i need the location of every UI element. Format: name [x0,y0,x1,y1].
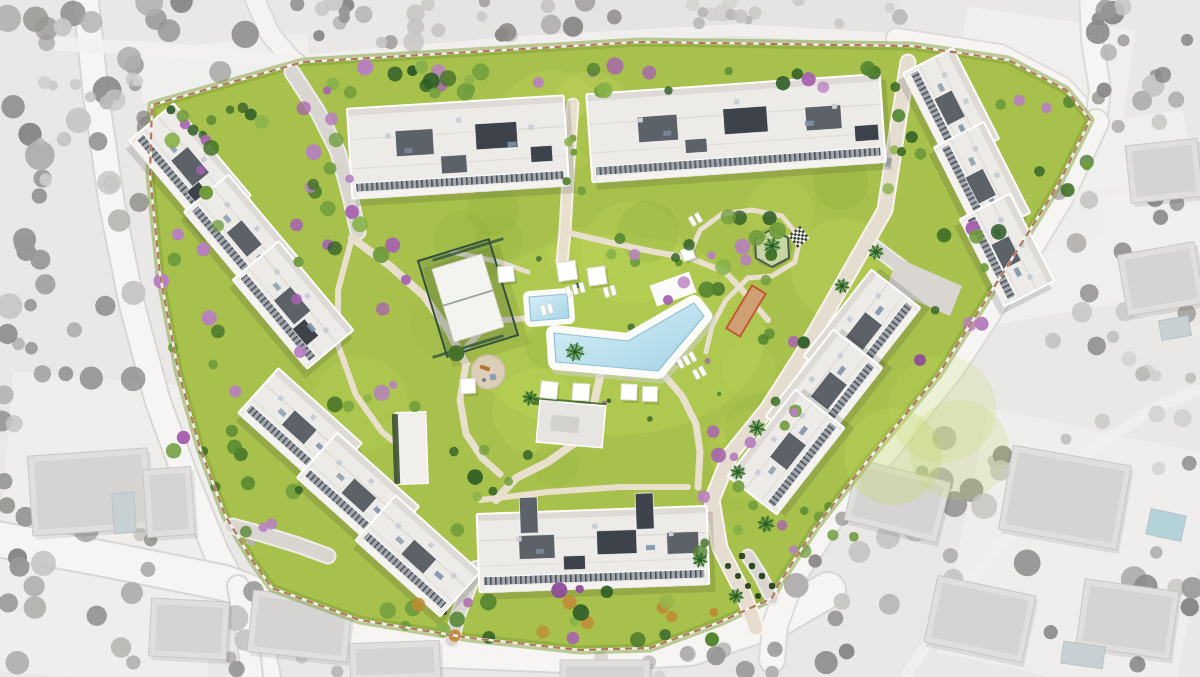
neighbour-house [143,466,199,541]
scene-layers [0,0,1200,677]
neighbour-house [1117,241,1200,320]
pergola-canopy [587,266,610,290]
pergola-canopy [621,384,640,404]
pergola-canopy [556,260,580,285]
neighbour-house [1125,138,1200,207]
west-pavilion [396,411,428,484]
masterplan-rendering [0,0,1200,677]
pergola-canopy [460,378,478,397]
neighbour-house [27,448,156,540]
neighbour-house [560,660,653,677]
pergola-canopy [539,381,560,403]
block-b [346,94,576,206]
neighbour-house [349,640,443,677]
masterplan-image [0,0,1200,677]
pergola-canopy [572,383,592,404]
pergola-canopy [642,386,660,405]
neighbour-house [148,598,232,664]
